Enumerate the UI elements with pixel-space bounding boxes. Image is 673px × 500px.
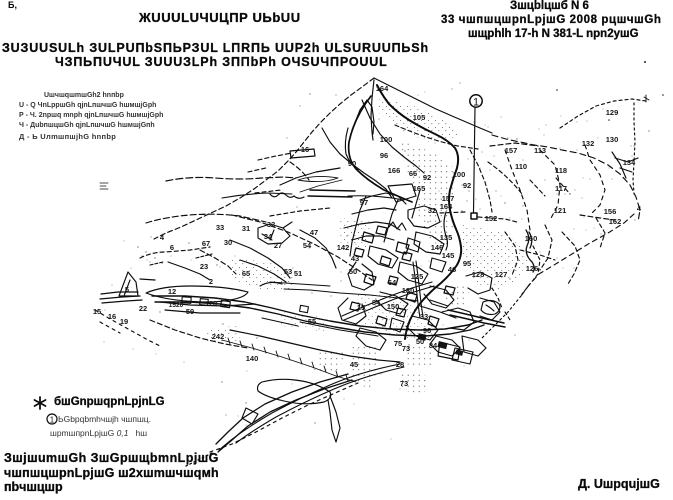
svg-text:59: 59 [186, 307, 194, 316]
svg-text:19: 19 [120, 317, 128, 326]
svg-text:67: 67 [202, 239, 210, 248]
svg-text:73: 73 [400, 379, 408, 388]
svg-text:142: 142 [337, 243, 350, 252]
svg-text:66: 66 [409, 169, 417, 178]
svg-text:118: 118 [555, 166, 567, 175]
svg-text:16: 16 [108, 312, 116, 321]
svg-text:164: 164 [440, 202, 453, 211]
svg-text:54: 54 [303, 241, 312, 250]
svg-text:16: 16 [301, 145, 309, 154]
svg-text:92: 92 [423, 173, 431, 182]
svg-text:164: 164 [376, 84, 389, 93]
svg-text:127: 127 [495, 270, 508, 279]
svg-text:50: 50 [349, 267, 357, 276]
svg-text:162: 162 [609, 217, 622, 226]
svg-text:1: 1 [50, 416, 55, 425]
svg-text:152: 152 [485, 214, 498, 223]
svg-text:53: 53 [284, 267, 292, 276]
svg-text:33: 33 [420, 312, 428, 321]
svg-text:157: 157 [505, 146, 518, 155]
svg-text:121: 121 [554, 206, 567, 215]
svg-text:47: 47 [310, 228, 318, 237]
svg-text:110: 110 [515, 162, 527, 171]
svg-text:5: 5 [125, 285, 129, 294]
svg-text:156: 156 [604, 207, 617, 216]
svg-text:1520: 1520 [169, 302, 184, 309]
svg-text:145: 145 [442, 251, 455, 260]
svg-text:97: 97 [360, 198, 368, 207]
svg-text:96: 96 [380, 151, 388, 160]
svg-text:64: 64 [388, 278, 397, 287]
svg-text:6: 6 [170, 243, 174, 252]
svg-text:96: 96 [423, 326, 431, 335]
svg-text:150: 150 [387, 302, 400, 311]
svg-text:100: 100 [453, 170, 466, 179]
svg-text:45: 45 [350, 360, 358, 369]
svg-text:125: 125 [411, 272, 424, 281]
svg-text:140: 140 [246, 354, 259, 363]
svg-text:12: 12 [168, 287, 176, 296]
svg-text:23: 23 [200, 262, 208, 271]
svg-text:75: 75 [394, 339, 402, 348]
svg-text:128: 128 [472, 270, 485, 279]
svg-text:30: 30 [224, 238, 232, 247]
svg-text:65: 65 [242, 269, 250, 278]
svg-text:32: 32 [428, 206, 436, 215]
svg-text:105: 105 [413, 113, 426, 122]
svg-text:160: 160 [525, 234, 538, 243]
svg-text:2: 2 [209, 277, 213, 286]
svg-text:22: 22 [139, 304, 147, 313]
svg-text:134: 134 [623, 158, 636, 167]
svg-text:15: 15 [357, 303, 365, 312]
svg-text:84: 84 [372, 298, 381, 307]
svg-text:51: 51 [294, 269, 302, 278]
svg-text:90: 90 [348, 159, 356, 168]
svg-text:92: 92 [463, 181, 471, 190]
svg-text:34: 34 [264, 232, 273, 241]
svg-text:50: 50 [416, 337, 424, 346]
svg-text:20: 20 [209, 299, 217, 308]
svg-text:180: 180 [402, 286, 415, 295]
svg-text:55: 55 [308, 317, 316, 326]
svg-text:165: 165 [413, 184, 426, 193]
svg-text:166: 166 [388, 166, 401, 175]
svg-text:32: 32 [267, 220, 275, 229]
svg-text:31: 31 [242, 224, 250, 233]
svg-text:33: 33 [216, 223, 224, 232]
svg-text:126: 126 [526, 264, 539, 273]
svg-text:28: 28 [396, 360, 404, 369]
svg-text:129: 129 [606, 108, 619, 117]
svg-text:1: 1 [473, 97, 479, 109]
svg-text:135: 135 [440, 233, 453, 242]
svg-text:46: 46 [448, 265, 456, 274]
svg-text:95: 95 [463, 259, 471, 268]
svg-text:117: 117 [555, 184, 567, 193]
svg-text:132: 132 [582, 139, 595, 148]
svg-text:100: 100 [380, 135, 393, 144]
svg-text:27: 27 [274, 241, 282, 250]
svg-text:43: 43 [351, 254, 359, 263]
svg-text:130: 130 [606, 135, 619, 144]
svg-text:242: 242 [212, 332, 225, 341]
svg-text:84: 84 [429, 341, 438, 350]
svg-text:4: 4 [637, 204, 642, 213]
svg-text:113: 113 [534, 146, 546, 155]
svg-text:15: 15 [93, 307, 101, 316]
